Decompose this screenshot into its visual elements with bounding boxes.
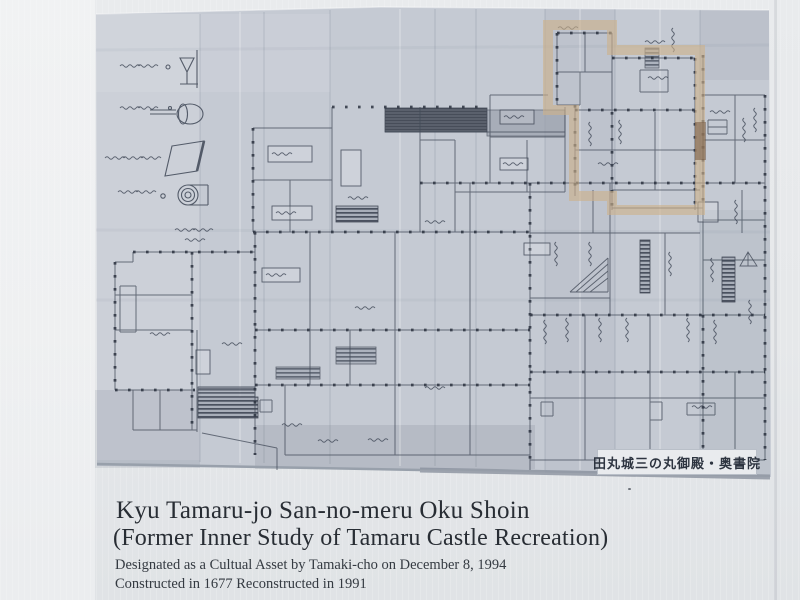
plan-paper-sheet — [95, 7, 771, 477]
plan-caption-box: 田丸城三の丸御殿・奥書院 — [597, 449, 757, 475]
dark-patch — [695, 122, 706, 160]
title-english-line: (Former Inner Study of Tamaru Castle Rec… — [113, 525, 608, 552]
sign-photo: 田丸城三の丸御殿・奥書院 Kyu Tamaru-jo San-no-meru O… — [0, 0, 800, 600]
title-romaji-line: Kyu Tamaru-jo San-no-meru Oku Shoin — [116, 497, 530, 525]
dust-speck — [628, 488, 631, 490]
plan-caption-text: 田丸城三の丸御殿・奥書院 — [593, 453, 761, 472]
designation-text: Designated as a Cultual Asset by Tamaki-… — [115, 557, 506, 574]
construction-text: Constructed in 1677 Reconstructed in 199… — [115, 576, 367, 593]
